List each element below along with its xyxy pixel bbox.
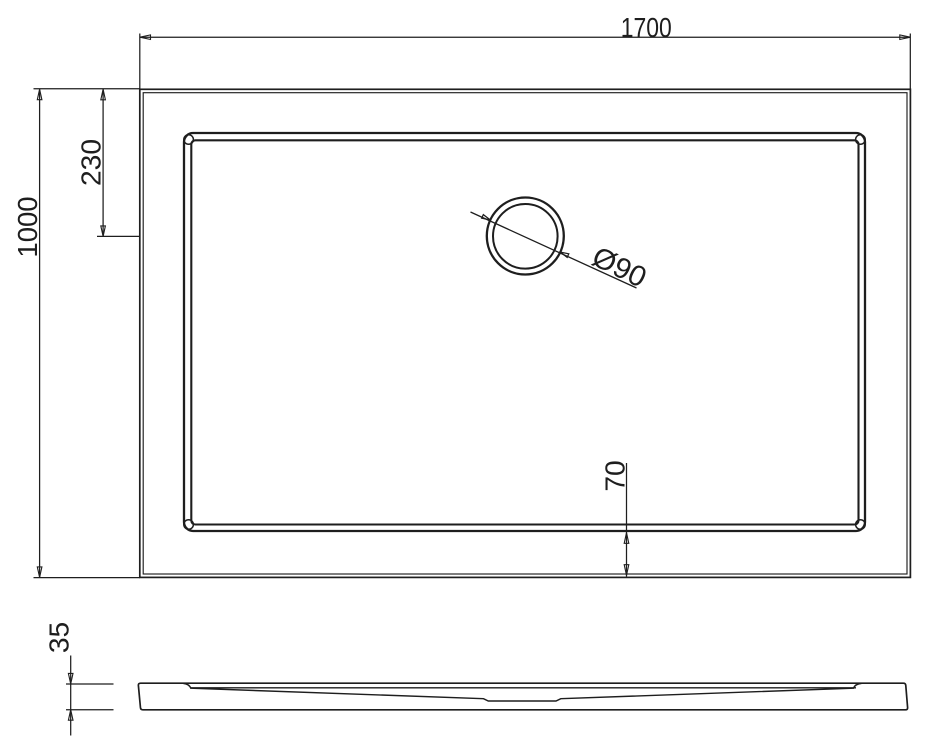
svg-text:35: 35 [43, 622, 75, 653]
svg-text:1700: 1700 [621, 12, 672, 43]
svg-text:1000: 1000 [12, 196, 43, 257]
svg-text:70: 70 [599, 460, 631, 491]
svg-text:230: 230 [74, 139, 106, 186]
